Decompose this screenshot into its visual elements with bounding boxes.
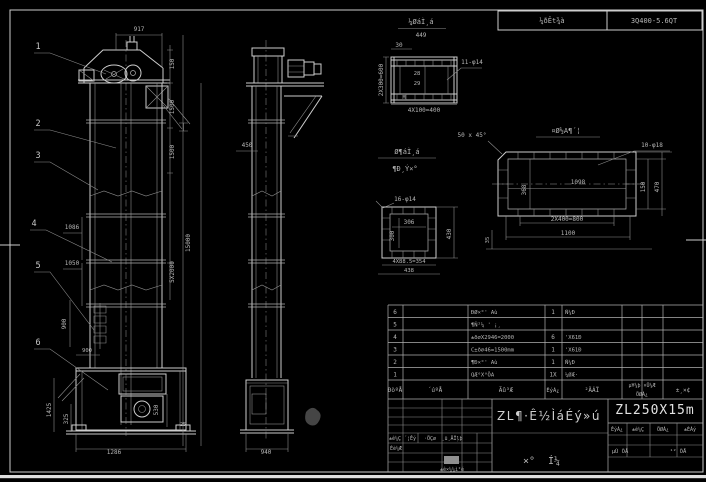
drawing-number: ZL250X15m (615, 403, 694, 418)
square-detail-title: Ø¶áÌ¸á (394, 147, 419, 156)
weld-mark: M (402, 95, 405, 101)
callout-6: 6 (35, 338, 40, 348)
col-header-code: ´úºÅ (428, 387, 443, 394)
front-view: 1 2 3 4 5 6 917 150 1500 1500 5X2000 150… (30, 26, 201, 456)
dim-label: 1286 (107, 449, 122, 456)
dim-label: 306 (404, 219, 415, 226)
callout-3: 3 (35, 151, 40, 161)
flange-detail-title: ¤Ø½A¶´¦ (551, 127, 581, 135)
dim-label: 28 (414, 71, 421, 77)
highlight-cell (444, 456, 459, 464)
sheet-number: µÚ ÕÅ (612, 448, 629, 455)
dim-label: 35 (485, 237, 491, 244)
col-header-qty: ÊýÁ¿ (546, 386, 559, 394)
cell-name: ÐØ×°' Aù (471, 309, 498, 316)
cell-no: 2 (393, 359, 397, 366)
screen-artifact (305, 408, 321, 426)
col-header-no: ÐòºÅ (388, 387, 403, 394)
mini-header: ÖØÁ¿ (657, 426, 669, 433)
title-block: ZL¶·Ê½ÌáÉý»ú ×° Í¼ ZL250X15m ÊýÁ¿ ±ê¼Ç Ö… (388, 399, 703, 473)
table-row: 6 ÐØ×°' Aù 1 Ñ¼Ð (393, 309, 575, 316)
dim-label: 4X88.5=354 (392, 259, 426, 265)
cell-material: ¼ØÆ· (565, 372, 578, 379)
dim-label: 325 (63, 413, 70, 424)
header-strip: ¼ðÊt¾à 3Q400-5.6QT (498, 11, 702, 30)
dim-label: 30 (395, 42, 403, 49)
table-row: 5 ¶Ñ²¼ ' ¡¸ (393, 322, 501, 329)
channel-detail: ¼ØáÌ¸á 449 30 11-φ14 2X300=600 28 29 M 4… (378, 17, 483, 114)
rev-label: ±ê¼Ç (389, 435, 401, 442)
dim-label: 1100 (561, 230, 576, 237)
sheet-total: ¹² ÕÅ (670, 448, 687, 455)
dim-label: 917 (134, 26, 145, 33)
drawing-title: ZL¶·Ê½ÌáÉý»ú (497, 408, 601, 423)
callout-1: 1 (35, 42, 40, 52)
header-note: ¼ðÊt¾à (539, 16, 564, 25)
dim-label: 25 (180, 422, 186, 428)
dim-label: 4X100=400 (408, 107, 441, 114)
dim-label: 1425 (46, 402, 53, 417)
dim-label: 470 (654, 181, 661, 192)
cell-no: 5 (393, 322, 397, 329)
dim-label: 50 x 45° (458, 132, 487, 139)
cell-name: C±ð∅46=1500mm (471, 348, 515, 354)
drawing-type-char: Í¼ (548, 454, 560, 467)
bucket-chain (94, 303, 106, 349)
cell-material: Ñ¼Ð (565, 359, 575, 366)
dim-label: 300 (389, 230, 396, 241)
channel-detail-title: ¼ØáÌ¸á (408, 17, 433, 26)
dim-label: 438 (404, 268, 414, 274)
callout-5: 5 (35, 261, 40, 271)
dim-label: 16-φ14 (394, 196, 416, 203)
cell-no: 1 (393, 372, 397, 379)
dim-label: 1086 (65, 224, 80, 231)
dim-label: 29 (414, 81, 421, 87)
dim-label: 940 (261, 449, 272, 456)
callout-2: 2 (35, 119, 40, 129)
col-header-name: Ãû³Æ (499, 387, 514, 394)
cell-no: 4 (393, 334, 397, 341)
cell-no: 3 (393, 347, 397, 354)
col-header-weight-sub: ÖØÁ¿ (636, 391, 648, 398)
dim-label: 1500 (169, 99, 176, 114)
dim-label: 900 (82, 348, 92, 354)
dim-label: 5X2000 (169, 261, 176, 283)
callout-4: 4 (31, 219, 36, 229)
cell-name: ¶Ð×°' Aù (471, 359, 498, 366)
cad-viewport: ¼ðÊt¾à 3Q400-5.6QT ¼ØáÌ¸á 449 30 11-φ14 … (0, 0, 706, 482)
cell-qty: 1 (551, 359, 555, 366)
parts-table: ÐòºÅ ´úºÅ Ãû³Æ ÊýÁ¿ ²ÄÁÏ µ¥¼þ ×Ü¼Æ ÖØÁ¿ … (388, 305, 703, 472)
dim-label: 530 (153, 404, 160, 415)
table-row: 1 QÆ°X°ÖA 1X ¼ØÆ· (393, 372, 578, 379)
cad-canvas: ¼ðÊt¾à 3Q400-5.6QT ¼ØáÌ¸á 449 30 11-φ14 … (0, 0, 706, 482)
boot-window (134, 401, 150, 417)
rev-label: ·ÖÇø (424, 435, 436, 442)
frame-bottom-band (0, 475, 706, 478)
rect-flange-detail: ¤Ø½A¶´¦ 50 x 45° 1098 368 10-φ18 150 470… (458, 127, 672, 249)
cell-material: 'X61Ð (565, 335, 582, 341)
rev-label: ´¦Êý (404, 434, 416, 442)
cell-qty: 1X (549, 372, 557, 379)
col-header-note: ±¸×¢ (676, 387, 691, 394)
square-flange-detail: Ø¶áÌ¸á ¶Ð¸Ý×° 16-φ14 306 300 430 4X88.5=… (376, 147, 458, 274)
dim-label: 2X400=800 (551, 216, 584, 223)
table-row: 4 ±ð∅X2946=2000 6 'X61Ð (393, 334, 581, 341)
dim-label: 15000 (185, 234, 192, 252)
mini-header: ±ÈÀý (684, 425, 696, 433)
channel-detail-scale: 449 (416, 32, 427, 39)
mini-header: ±ê¼Ç (632, 426, 644, 433)
dim-label: 1098 (571, 179, 586, 186)
dim-label: 2X300=600 (378, 63, 385, 96)
cell-qty: 6 (551, 334, 555, 341)
dim-label: 11-φ14 (461, 59, 483, 66)
approve-label: ±ê×¼¼ì²é (440, 466, 464, 473)
cell-qty: 1 (551, 347, 555, 354)
col-header-material: ²ÄÁÏ (585, 387, 600, 394)
cell-qty: 1 (551, 309, 555, 316)
dim-label: 150 (169, 58, 176, 69)
header-spec: 3Q400-5.6QT (631, 17, 678, 25)
dim-label: 10-φ18 (641, 142, 663, 149)
dim-label: 150 (640, 181, 647, 192)
dim-label: 368 (521, 184, 528, 195)
col-header-weight: µ¥¼þ ×Ü¼Æ (628, 382, 655, 389)
cell-name: QÆ°X°ÖA (471, 372, 495, 379)
dim-label: 1050 (65, 260, 80, 267)
table-row: 3 C±ð∅46=1500mm 1 'X61Ð (393, 347, 581, 354)
designer-label: Éè¼Æ (390, 444, 402, 452)
dim-label: 1500 (169, 144, 176, 159)
cell-material: Ñ¼Ð (565, 309, 575, 316)
rev-label: ¸ü¸ÄÎļþ (441, 435, 462, 442)
table-row: 2 ¶Ð×°' Aù 1 Ñ¼Ð (393, 359, 575, 366)
cell-name: ±ð∅X2946=2000 (471, 335, 514, 341)
dim-label: 900 (61, 318, 68, 329)
side-motor (288, 60, 304, 77)
drawing-type-char: ×° (523, 456, 535, 467)
cell-name: ¶Ñ²¼ ' ¡¸ (471, 322, 501, 329)
cell-material: 'X61Ð (565, 348, 582, 354)
square-detail-subtitle: ¶Ð¸Ý×° (392, 164, 417, 173)
dim-label: 450 (242, 142, 253, 149)
dim-label: 430 (446, 228, 453, 239)
side-view: 450 940 (236, 40, 324, 456)
cell-no: 6 (393, 309, 397, 316)
mini-header: ÊýÁ¿ (611, 425, 623, 433)
